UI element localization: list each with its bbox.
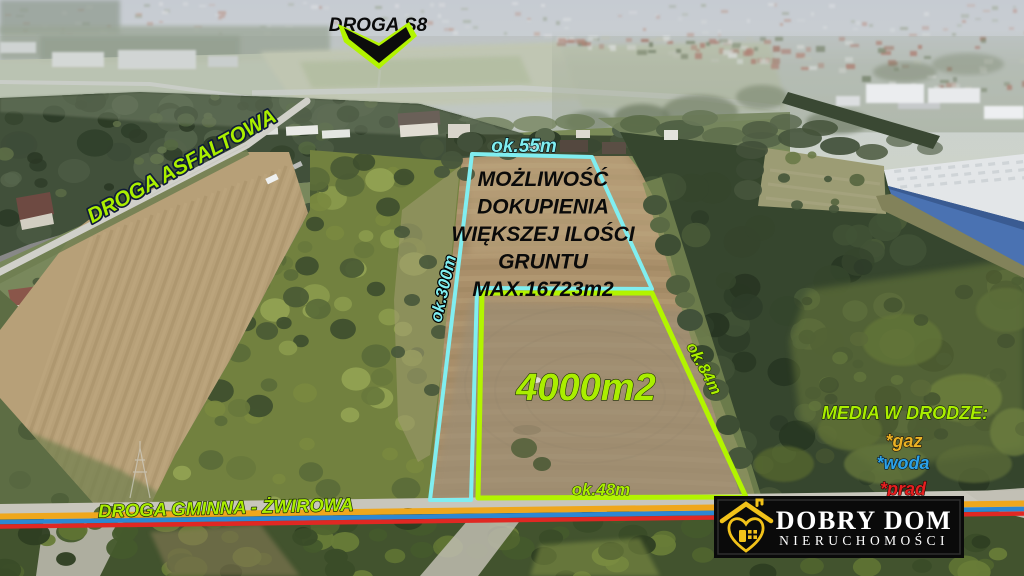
svg-text:ok.55m: ok.55m: [491, 136, 557, 157]
svg-text:*gaz: *gaz: [885, 431, 922, 451]
svg-text:DOKUPIENIA: DOKUPIENIA: [477, 196, 609, 219]
svg-text:WIĘKSZEJ ILOŚCI: WIĘKSZEJ ILOŚCI: [451, 222, 635, 246]
svg-text:MOŻLIWOŚĆ: MOŻLIWOŚĆ: [478, 167, 609, 191]
svg-text:ok.48m: ok.48m: [572, 480, 631, 499]
svg-text:*woda: *woda: [876, 453, 929, 473]
svg-text:MAX.16723m2: MAX.16723m2: [472, 278, 614, 301]
svg-text:DOBRY DOM: DOBRY DOM: [776, 506, 952, 535]
svg-text:MEDIA W DRODZE:: MEDIA W DRODZE:: [822, 403, 988, 423]
svg-text:GRUNTU: GRUNTU: [498, 251, 589, 274]
svg-text:NIERUCHOMOŚCI: NIERUCHOMOŚCI: [779, 533, 949, 548]
svg-text:4000m2: 4000m2: [515, 367, 655, 409]
